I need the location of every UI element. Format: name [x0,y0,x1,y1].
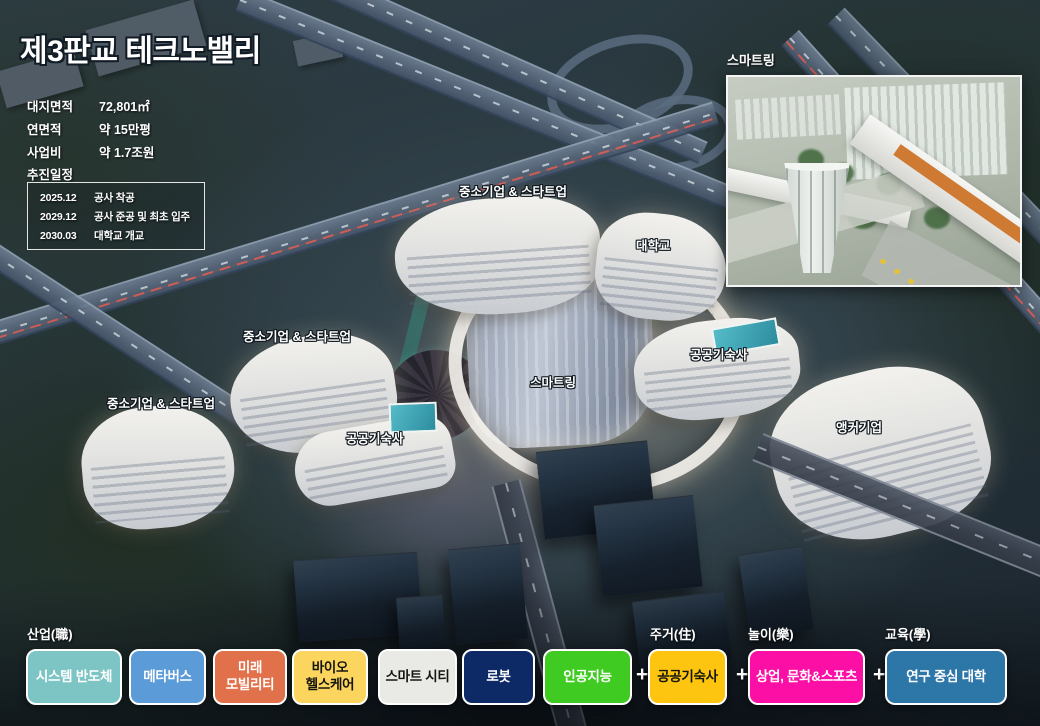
schedule-date: 2029.12 [40,208,86,227]
map-label-anchor: 앵커기업 [836,417,882,436]
info-label: 연면적 [27,119,79,138]
inset-yellow-seat [908,279,914,284]
info-value: 72,801㎡ [99,100,150,114]
map-label-sme-mid: 중소기업 & 스타트업 [243,326,351,345]
building-shape-sme-left [77,400,239,535]
schedule-desc: 대학교 개교 [94,230,144,242]
legend-button-public-dormitory: 공공기숙사 [648,649,727,705]
inset-yellow-seat [880,259,886,264]
legend-button-label: 공공기숙사 [657,669,718,686]
infographic-canvas: 제3판교 테크노밸리 대지면적72,801㎡ 연면적약 15만평 사업비약 1.… [0,0,1040,726]
legend-button-commerce-culture-sports: 상업, 문화&스포츠 [748,649,865,705]
info-row-site-area: 대지면적72,801㎡ [27,96,150,115]
legend-button-bio-healthcare: 바이오 헬스케어 [292,649,368,705]
legend-button-research-university: 연구 중심 대학 [885,649,1007,705]
schedule-date: 2030.03 [40,227,86,246]
plus-separator: + [736,663,748,687]
legend-button-label: 미래 모빌리티 [226,660,274,694]
schedule-desc: 공사 준공 및 최초 입주 [94,211,190,223]
info-label: 대지면적 [27,96,79,115]
legend-button-metaverse: 메타버스 [129,649,206,705]
map-label-dorm-right: 공공기숙사 [690,344,748,363]
legend-button-robot: 로봇 [462,649,535,705]
legend-button-face: 미래 모빌리티 [213,649,287,705]
info-row-floor-area: 연면적약 15만평 [27,119,151,138]
legend-button-face: 상업, 문화&스포츠 [748,649,865,705]
legend-button-label: 연구 중심 대학 [906,669,986,686]
info-row-budget: 사업비약 1.7조원 [27,142,154,161]
category-label-industry: 산업(職) [27,624,73,643]
plus-separator: + [636,663,648,687]
legend-button-face: 시스템 반도체 [26,649,122,705]
schedule-box: 2025.12공사 착공 2029.12공사 준공 및 최초 입주 2030.0… [27,182,205,250]
page-title: 제3판교 테크노밸리 [20,26,261,70]
legend-button-label: 메타버스 [143,669,191,686]
legend-button-label: 바이오 헬스케어 [306,660,354,694]
smart-ring-inset-image [726,75,1022,287]
plus-separator: + [873,663,885,687]
legend-button-face: 인공지능 [543,649,632,705]
info-value: 약 1.7조원 [99,146,154,160]
legend-button-face: 연구 중심 대학 [885,649,1007,705]
legend-button-ai: 인공지능 [543,649,632,705]
legend-button-future-mobility: 미래 모빌리티 [213,649,287,705]
legend-button-face: 바이오 헬스케어 [292,649,368,705]
legend-button-face: 로봇 [462,649,535,705]
legend-button-label: 시스템 반도체 [36,669,112,686]
legend-button-face: 스마트 시티 [378,649,457,705]
category-label-residence: 주거(住) [650,624,696,643]
legend-button-face: 메타버스 [129,649,206,705]
legend-button-label: 상업, 문화&스포츠 [756,669,857,686]
schedule-row: 2025.12공사 착공 [40,189,198,208]
legend-button-label: 스마트 시티 [385,669,449,686]
legend-button-system-semiconductor: 시스템 반도체 [26,649,122,705]
legend-button-label: 인공지능 [563,669,611,686]
map-label-dorm-left: 공공기숙사 [346,428,404,447]
inset-yellow-seat [894,269,900,274]
schedule-row: 2029.12공사 준공 및 최초 입주 [40,208,198,227]
schedule-date: 2025.12 [40,189,86,208]
info-label: 사업비 [27,142,79,161]
map-label-university: 대학교 [636,235,671,254]
schedule-row: 2030.03대학교 개교 [40,227,198,246]
category-label-leisure: 놀이(樂) [748,624,794,643]
legend-button-smart-city: 스마트 시티 [378,649,457,705]
schedule-desc: 공사 착공 [94,192,135,204]
legend-button-label: 로봇 [486,669,510,686]
info-label: 추진일정 [27,164,79,183]
legend-button-face: 공공기숙사 [648,649,727,705]
map-label-sme-top: 중소기업 & 스타트업 [459,181,567,200]
map-label-smart-ring: 스마트링 [530,372,576,391]
inset-glass-building [735,94,841,139]
map-label-sme-left: 중소기업 & 스타트업 [107,393,215,412]
inset-label: 스마트링 [727,50,775,69]
category-label-education: 교육(學) [885,624,931,643]
info-row-schedule-title: 추진일정 [27,164,79,183]
info-value: 약 15만평 [99,123,151,137]
